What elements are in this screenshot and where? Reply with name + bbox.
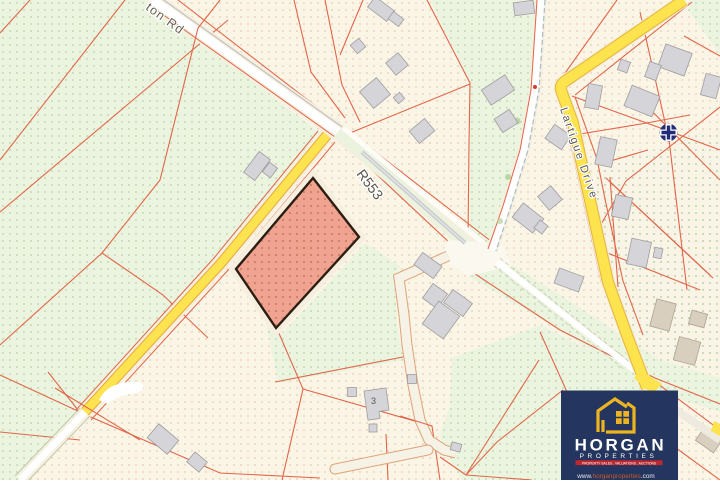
svg-text:www.horganproperties.com: www.horganproperties.com xyxy=(576,473,654,480)
svg-text:3: 3 xyxy=(371,396,376,406)
svg-text:HORGAN: HORGAN xyxy=(575,436,667,455)
svg-text:PROPERTIES: PROPERTIES xyxy=(580,453,658,460)
svg-text:PROPERTY SALES . VALUATIONS .: PROPERTY SALES . VALUATIONS . AUCTIONS xyxy=(582,461,657,465)
